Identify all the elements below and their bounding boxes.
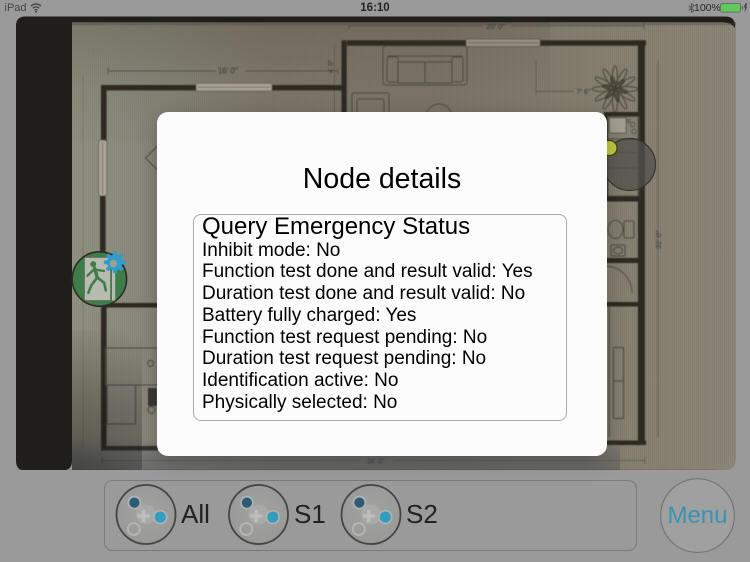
- svg-text:20' 0": 20' 0": [486, 22, 505, 31]
- svg-text:32' 0": 32' 0": [654, 230, 663, 249]
- svg-text:16' 0": 16' 0": [218, 67, 238, 76]
- svg-text:7' 6": 7' 6": [577, 87, 591, 96]
